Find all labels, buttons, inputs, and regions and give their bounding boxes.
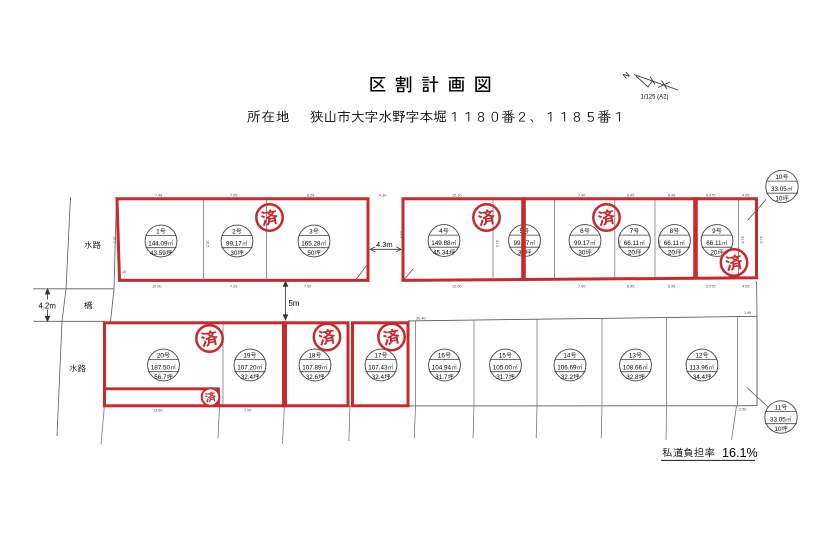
svg-text:43.59坪: 43.59坪 bbox=[150, 248, 172, 257]
svg-text:30.40: 30.40 bbox=[416, 317, 426, 321]
svg-text:45.34坪: 45.34坪 bbox=[433, 248, 455, 257]
svg-text:12号: 12号 bbox=[695, 351, 708, 360]
svg-text:私道負担率: 私道負担率 bbox=[662, 446, 715, 461]
svg-text:31.5: 31.5 bbox=[400, 231, 404, 238]
svg-text:所在地: 所在地 bbox=[247, 110, 291, 125]
svg-text:1/125 (A2): 1/125 (A2) bbox=[641, 95, 669, 101]
svg-text:113.96㎡: 113.96㎡ bbox=[689, 364, 714, 371]
svg-text:31.5: 31.5 bbox=[495, 240, 499, 247]
svg-text:水路: 水路 bbox=[69, 363, 87, 375]
svg-text:107.20㎡: 107.20㎡ bbox=[237, 364, 263, 371]
svg-text:8.28: 8.28 bbox=[307, 194, 314, 198]
svg-text:6.95: 6.95 bbox=[668, 285, 675, 289]
svg-text:4.2m: 4.2m bbox=[39, 302, 56, 311]
svg-text:99.17㎡: 99.17㎡ bbox=[574, 240, 596, 247]
svg-text:30坪: 30坪 bbox=[230, 248, 243, 257]
svg-text:4号: 4号 bbox=[439, 226, 449, 235]
svg-text:7号: 7号 bbox=[630, 226, 640, 235]
svg-text:187.50㎡: 187.50㎡ bbox=[151, 364, 177, 371]
svg-text:31.5: 31.5 bbox=[741, 236, 745, 243]
svg-text:6.075: 6.075 bbox=[706, 194, 716, 198]
svg-text:10坪: 10坪 bbox=[774, 424, 787, 433]
svg-text:50坪: 50坪 bbox=[307, 248, 320, 257]
svg-text:6.95: 6.95 bbox=[668, 194, 675, 198]
svg-text:10: 10 bbox=[122, 270, 126, 274]
svg-text:6.95: 6.95 bbox=[627, 285, 634, 289]
svg-text:7.50: 7.50 bbox=[304, 285, 311, 289]
svg-text:31.5: 31.5 bbox=[759, 236, 763, 243]
svg-text:9号: 9号 bbox=[712, 226, 722, 235]
svg-text:1号: 1号 bbox=[156, 227, 166, 236]
svg-text:10坪: 10坪 bbox=[775, 194, 788, 203]
svg-text:6.075: 6.075 bbox=[706, 285, 716, 289]
svg-text:104.94㎡: 104.94㎡ bbox=[432, 364, 458, 371]
svg-text:106.69㎡: 106.69㎡ bbox=[557, 364, 583, 371]
svg-text:31.7坪: 31.7坪 bbox=[496, 372, 515, 381]
svg-text:橋: 橋 bbox=[83, 300, 93, 312]
svg-text:12.00: 12.00 bbox=[452, 285, 462, 289]
svg-text:16号: 16号 bbox=[438, 351, 451, 360]
svg-text:32.4坪: 32.4坪 bbox=[372, 372, 391, 381]
svg-text:30坪: 30坪 bbox=[578, 248, 591, 257]
svg-text:8号: 8号 bbox=[670, 226, 680, 235]
svg-text:10.5: 10.5 bbox=[206, 240, 210, 247]
svg-text:32.4坪: 32.4坪 bbox=[241, 372, 260, 381]
svg-text:66.11㎡: 66.11㎡ bbox=[664, 240, 686, 247]
svg-text:33.05㎡: 33.05㎡ bbox=[770, 416, 792, 423]
svg-text:32.6坪: 32.6坪 bbox=[306, 372, 325, 381]
svg-text:10号: 10号 bbox=[775, 172, 788, 181]
svg-text:165.28㎡: 165.28㎡ bbox=[301, 240, 327, 247]
svg-text:4.30: 4.30 bbox=[379, 194, 386, 198]
svg-text:56.7坪: 56.7坪 bbox=[154, 372, 173, 381]
svg-text:149.88㎡: 149.88㎡ bbox=[431, 240, 457, 247]
svg-text:1.96: 1.96 bbox=[744, 311, 751, 315]
svg-text:12.10: 12.10 bbox=[452, 194, 462, 198]
svg-text:3号: 3号 bbox=[309, 227, 319, 236]
svg-text:31.7坪: 31.7坪 bbox=[435, 372, 454, 381]
svg-text:4.05: 4.05 bbox=[742, 285, 749, 289]
svg-text:7.25: 7.25 bbox=[230, 285, 237, 289]
svg-text:区割計画図: 区割計画図 bbox=[369, 71, 501, 97]
svg-text:31.5: 31.5 bbox=[617, 240, 621, 247]
svg-text:16.1%: 16.1% bbox=[722, 446, 758, 460]
svg-text:19号: 19号 bbox=[243, 351, 256, 360]
svg-text:7.00: 7.00 bbox=[578, 194, 585, 198]
svg-text:5m: 5m bbox=[289, 299, 300, 308]
svg-text:107.43㎡: 107.43㎡ bbox=[368, 364, 394, 371]
svg-text:2号: 2号 bbox=[232, 227, 242, 236]
svg-text:107.89㎡: 107.89㎡ bbox=[302, 364, 328, 371]
svg-text:108.66㎡: 108.66㎡ bbox=[623, 364, 649, 371]
svg-text:10.5: 10.5 bbox=[113, 236, 117, 243]
svg-text:99.17㎡: 99.17㎡ bbox=[226, 240, 248, 247]
svg-text:20坪: 20坪 bbox=[628, 248, 641, 257]
svg-text:34.4坪: 34.4坪 bbox=[693, 372, 712, 381]
svg-text:11号: 11号 bbox=[775, 403, 788, 412]
svg-text:20号: 20号 bbox=[157, 351, 170, 360]
svg-text:7.48: 7.48 bbox=[155, 194, 162, 198]
svg-text:10.00: 10.00 bbox=[152, 285, 162, 289]
svg-text:66.11㎡: 66.11㎡ bbox=[706, 240, 728, 247]
svg-text:32.8坪: 32.8坪 bbox=[626, 372, 645, 381]
svg-text:18号: 18号 bbox=[308, 351, 321, 360]
svg-text:14号: 14号 bbox=[563, 351, 576, 360]
svg-text:13.50: 13.50 bbox=[153, 409, 163, 413]
svg-text:4.3m: 4.3m bbox=[376, 240, 393, 249]
svg-text:7.00: 7.00 bbox=[244, 409, 251, 413]
svg-text:17号: 17号 bbox=[374, 351, 387, 360]
svg-text:7.00: 7.00 bbox=[578, 285, 585, 289]
svg-text:105.00㎡: 105.00㎡ bbox=[493, 364, 519, 371]
svg-text:4.05: 4.05 bbox=[742, 194, 749, 198]
svg-text:33.05㎡: 33.05㎡ bbox=[771, 186, 793, 193]
svg-text:32.2坪: 32.2坪 bbox=[561, 372, 580, 381]
svg-text:水路: 水路 bbox=[84, 239, 102, 251]
svg-text:66.11㎡: 66.11㎡ bbox=[624, 240, 646, 247]
svg-text:13号: 13号 bbox=[629, 351, 642, 360]
svg-text:2.50: 2.50 bbox=[739, 408, 746, 412]
svg-text:31.5: 31.5 bbox=[657, 240, 661, 247]
svg-text:144.09㎡: 144.09㎡ bbox=[148, 240, 174, 247]
svg-text:15号: 15号 bbox=[499, 351, 512, 360]
svg-text:20坪: 20坪 bbox=[668, 248, 681, 257]
svg-text:狭山市大字水野字本堀１１８０番２、１１８５番１: 狭山市大字水野字本堀１１８０番２、１１８５番１ bbox=[310, 110, 625, 125]
svg-text:6号: 6号 bbox=[580, 226, 590, 235]
svg-text:6.95: 6.95 bbox=[627, 194, 634, 198]
svg-text:7.25: 7.25 bbox=[230, 194, 237, 198]
